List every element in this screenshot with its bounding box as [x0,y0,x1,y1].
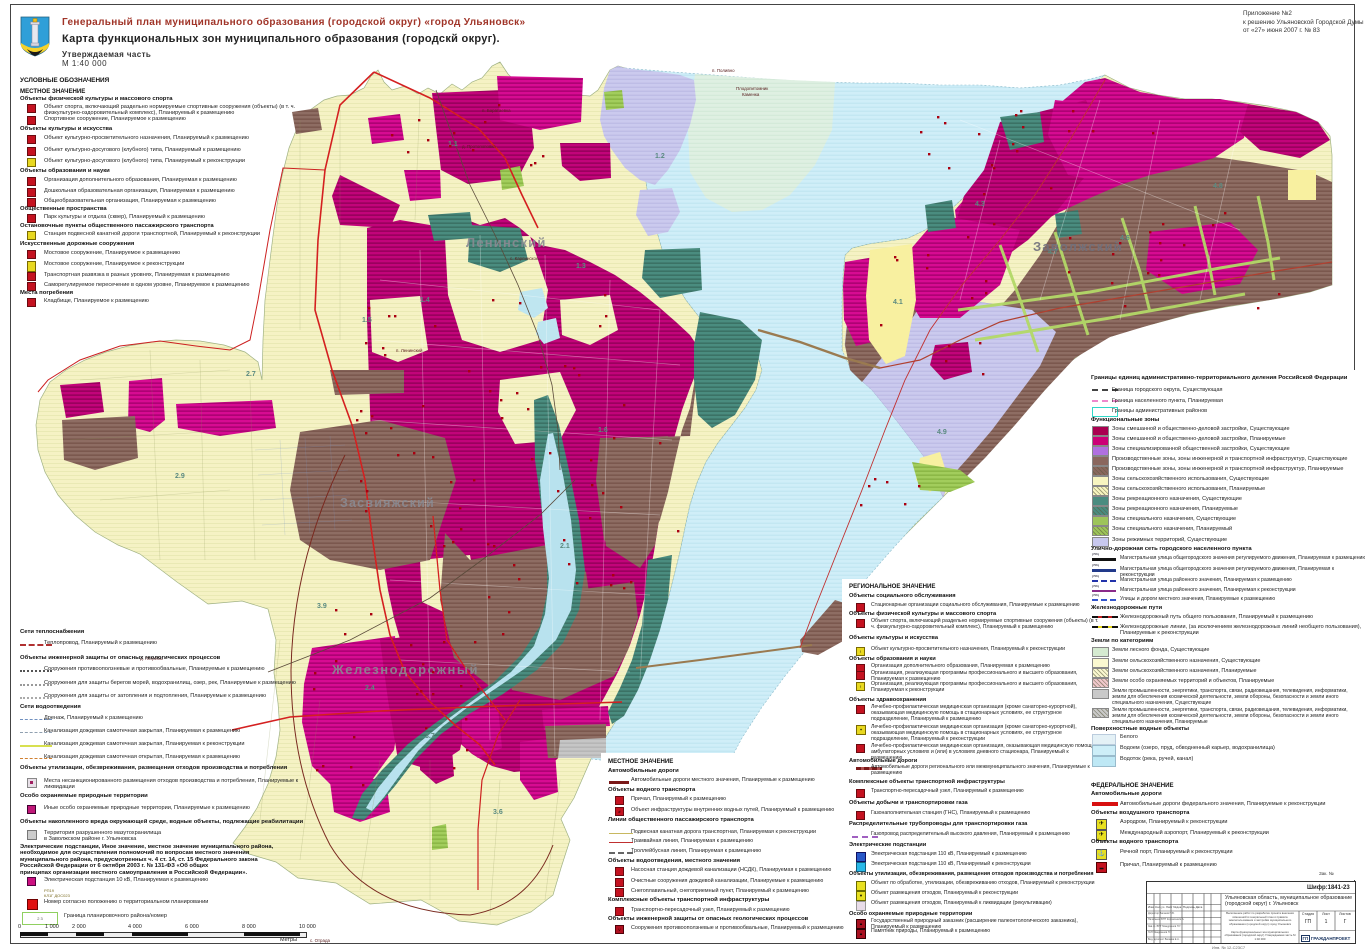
svg-text:Железнодорожный: Железнодорожный [331,662,479,677]
svg-text:1.5: 1.5 [362,317,372,324]
svg-text:3.7: 3.7 [425,733,435,740]
svg-text:2.7: 2.7 [246,371,256,378]
svg-text:с. Карлинское: с. Карлинское [510,256,539,261]
svg-text:п. Баратаевка: п. Баратаевка [482,108,511,113]
svg-text:д. Протопоповка: д. Протопоповка [462,144,496,149]
svg-text:1.4: 1.4 [420,297,430,304]
svg-text:Засвияжский: Засвияжский [340,496,435,510]
svg-text:Каменка: Каменка [742,92,760,97]
svg-text:4.8: 4.8 [1213,183,1223,190]
svg-text:3.9: 3.9 [317,603,327,610]
svg-text:п. Поливно: п. Поливно [712,68,735,73]
svg-text:п. Ленинский: п. Ленинский [396,348,423,353]
svg-text:2.4: 2.4 [365,685,375,692]
svg-text:4.3: 4.3 [975,201,985,208]
svg-text:4.6: 4.6 [1120,235,1130,242]
svg-text:Плодопитомник: Плодопитомник [736,86,768,91]
svg-text:Заволжский: Заволжский [1033,239,1123,254]
svg-text:3.6: 3.6 [493,809,503,816]
svg-text:1.2: 1.2 [655,153,665,160]
svg-text:1.3: 1.3 [576,263,586,270]
svg-text:Ленинский: Ленинский [466,235,547,250]
svg-text:4.1: 4.1 [893,299,903,306]
svg-text:4.7: 4.7 [1048,249,1058,256]
svg-text:1.6: 1.6 [598,427,608,434]
svg-text:4.9: 4.9 [937,429,947,436]
svg-text:2.1: 2.1 [560,543,570,550]
svg-text:2.9: 2.9 [175,473,185,480]
